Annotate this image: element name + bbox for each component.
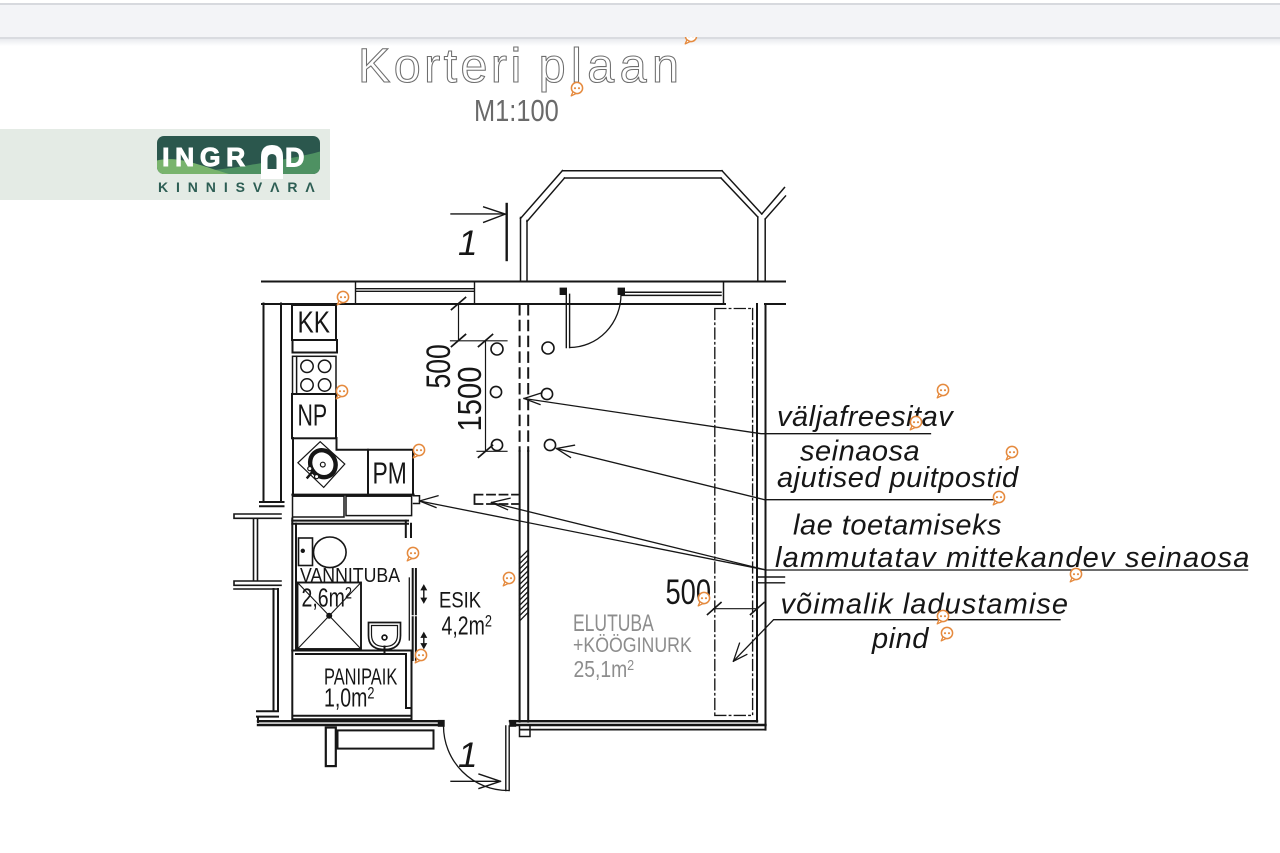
svg-text:lae toetamiseks: lae toetamiseks <box>793 510 1002 542</box>
svg-text:1,0m2: 1,0m2 <box>324 683 374 712</box>
svg-text:4,2m2: 4,2m2 <box>442 611 492 640</box>
svg-text:ESIK: ESIK <box>439 589 481 613</box>
svg-text:PM: PM <box>373 456 407 490</box>
svg-text:1: 1 <box>458 736 477 775</box>
svg-text:KK: KK <box>298 305 331 339</box>
svg-text:väljafreesitav: väljafreesitav <box>777 401 954 433</box>
svg-text:lammutatav mittekandev seinaos: lammutatav mittekandev seinaosa <box>775 542 1251 574</box>
svg-text:+KÖÖGINURK: +KÖÖGINURK <box>573 634 692 658</box>
svg-text:võimalik ladustamise: võimalik ladustamise <box>781 589 1070 621</box>
svg-text:pind: pind <box>871 623 929 655</box>
svg-text:1500: 1500 <box>451 367 488 432</box>
svg-text:NP: NP <box>298 397 328 432</box>
svg-text:ajutised puitpostid: ajutised puitpostid <box>777 462 1019 494</box>
svg-text:25,1m2: 25,1m2 <box>574 656 635 682</box>
svg-text:2,6m2: 2,6m2 <box>302 583 352 612</box>
svg-text:1: 1 <box>458 224 477 263</box>
